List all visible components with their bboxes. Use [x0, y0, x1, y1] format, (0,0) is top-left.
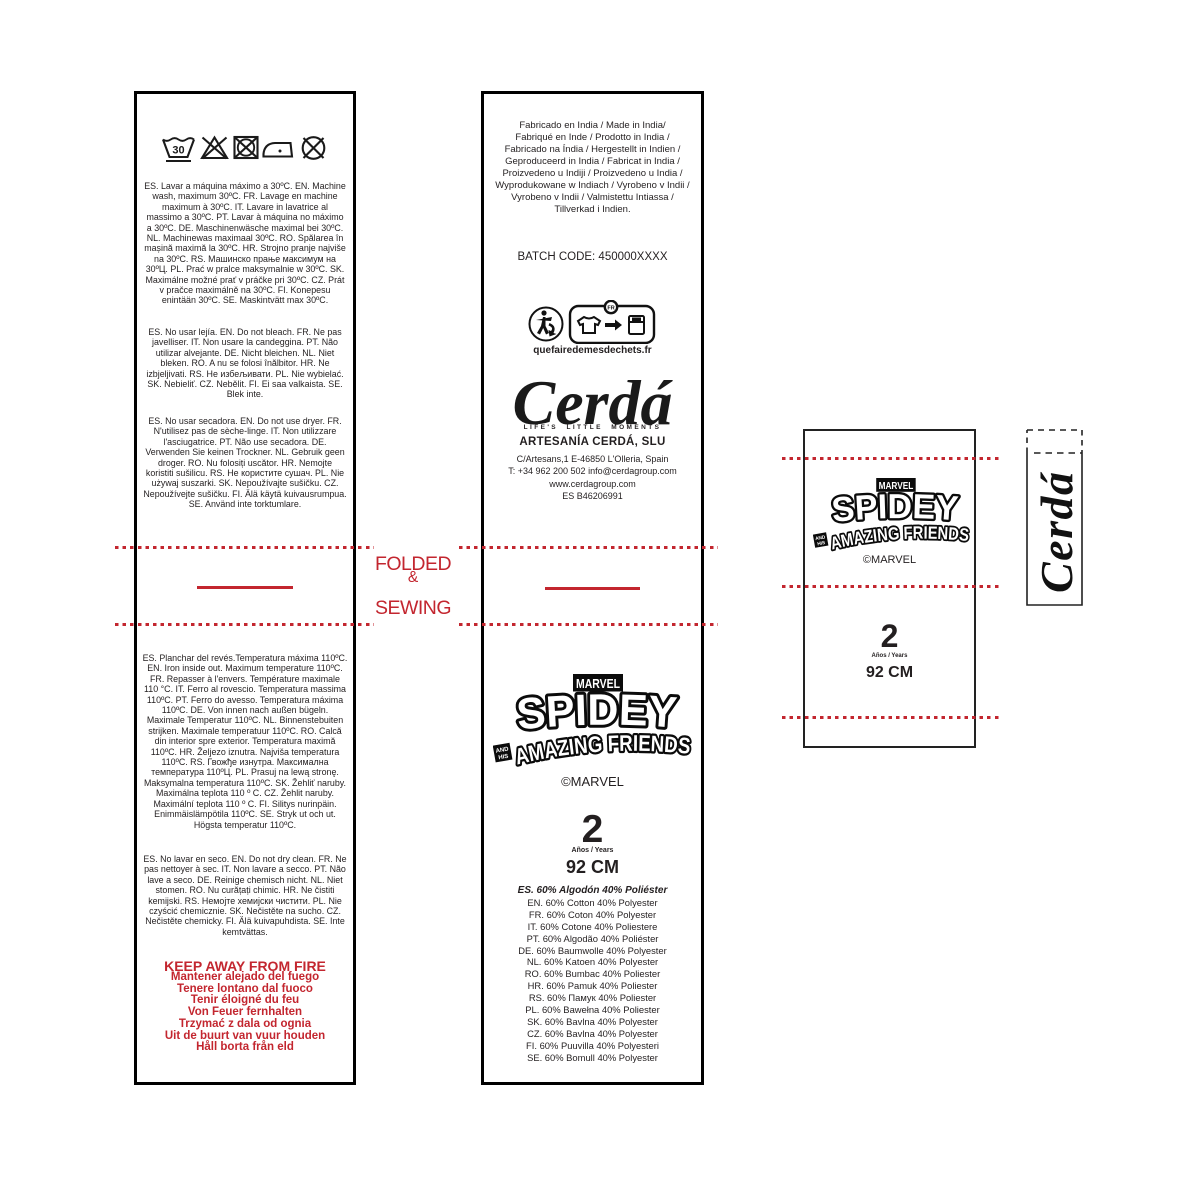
svg-text:30: 30: [172, 145, 184, 157]
svg-text:Cerdá: Cerdá: [1031, 471, 1082, 594]
svg-text:FR: FR: [607, 305, 614, 311]
